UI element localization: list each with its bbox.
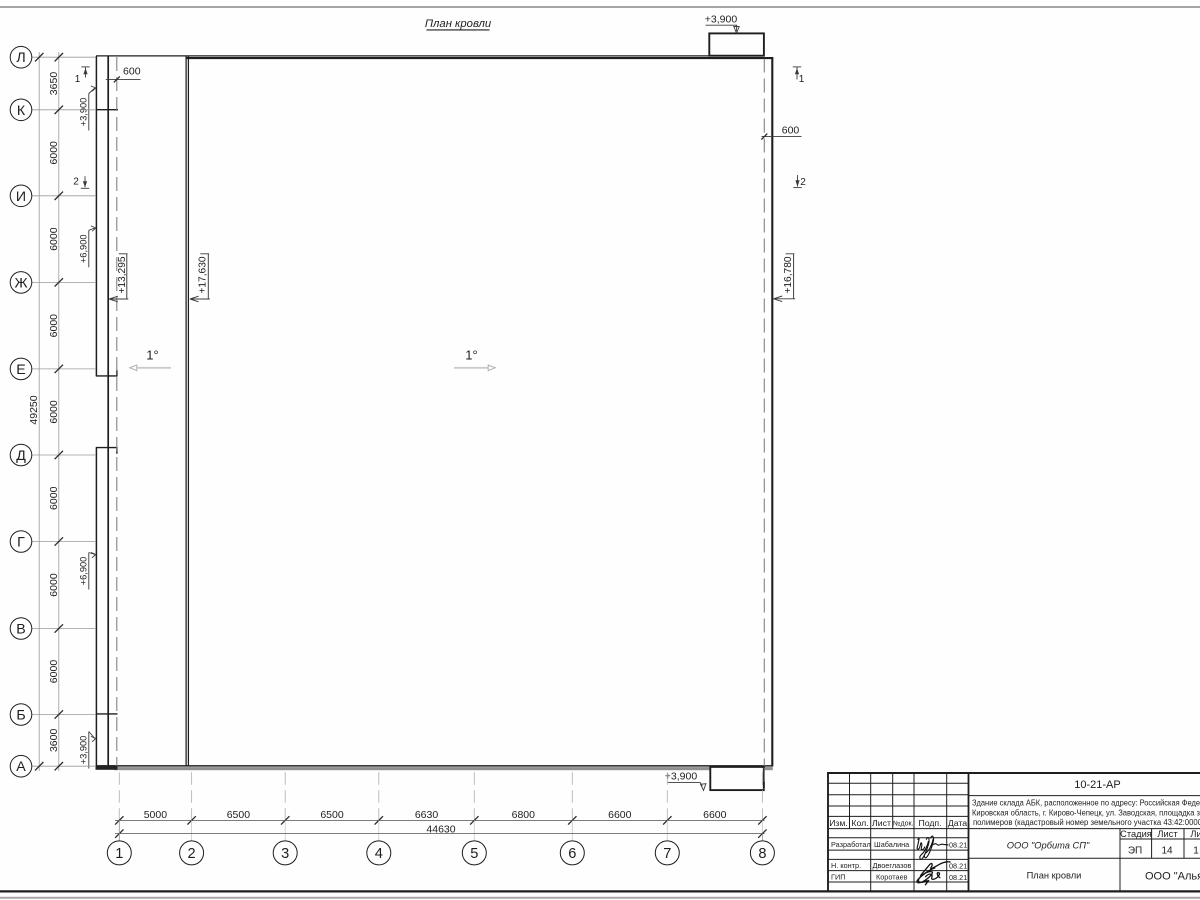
svg-text:Б: Б [16, 708, 25, 724]
svg-text:6000: 6000 [48, 400, 60, 424]
svg-text:ЭП: ЭП [1128, 846, 1142, 857]
svg-text:600: 600 [123, 65, 141, 77]
svg-text:10-21-АР: 10-21-АР [1074, 779, 1120, 791]
svg-text:1°: 1° [465, 348, 477, 363]
svg-text:В: В [16, 622, 25, 638]
svg-text:6500: 6500 [320, 809, 344, 821]
svg-text:+6,900: +6,900 [79, 234, 89, 263]
svg-text:Изм.: Изм. [829, 818, 848, 828]
svg-text:6600: 6600 [608, 809, 632, 821]
svg-text:14: 14 [1161, 846, 1173, 857]
svg-text:Ж: Ж [14, 275, 27, 291]
svg-text:6000: 6000 [48, 227, 60, 251]
svg-text:Дата: Дата [948, 818, 967, 828]
svg-text:А: А [16, 759, 26, 775]
svg-text:6000: 6000 [48, 314, 60, 338]
svg-text:Д: Д [16, 448, 26, 464]
svg-text:1: 1 [1193, 846, 1199, 857]
svg-text:2: 2 [800, 177, 806, 188]
svg-text:Л: Л [16, 50, 25, 66]
svg-text:Разработал: Разработал [831, 840, 871, 849]
svg-text:6630: 6630 [415, 809, 439, 821]
svg-text:Г: Г [17, 535, 25, 551]
svg-text:И: И [16, 189, 26, 205]
svg-text:Лист: Лист [1157, 829, 1178, 839]
svg-text:5000: 5000 [144, 809, 168, 821]
svg-text:К: К [17, 103, 26, 119]
svg-text:600: 600 [782, 125, 800, 137]
svg-text:6500: 6500 [227, 809, 251, 821]
svg-text:+6,900: +6,900 [79, 557, 89, 586]
svg-text:Е: Е [16, 362, 25, 378]
svg-text:6000: 6000 [48, 141, 60, 165]
svg-text:49250: 49250 [28, 395, 40, 424]
svg-text:ГИП: ГИП [831, 872, 845, 881]
svg-text:+17,630: +17,630 [198, 256, 209, 293]
svg-text:Лист: Лист [872, 818, 891, 828]
svg-text:+3,900: +3,900 [705, 14, 738, 26]
svg-text:6000: 6000 [48, 573, 60, 597]
svg-text:08.21: 08.21 [949, 862, 967, 871]
svg-text:Шабалина: Шабалина [874, 840, 910, 849]
svg-text:Стадия: Стадия [1120, 829, 1152, 839]
svg-text:Подп.: Подп. [918, 818, 941, 828]
svg-text:3600: 3600 [48, 729, 60, 753]
svg-text:Кол.: Кол. [851, 818, 868, 828]
svg-text:6600: 6600 [703, 809, 727, 821]
svg-text:6: 6 [568, 846, 576, 862]
svg-text:6000: 6000 [48, 486, 60, 510]
svg-text:8: 8 [758, 846, 766, 862]
svg-text:+3,900: +3,900 [665, 771, 698, 783]
svg-text:Здание склада АБК, расположенн: Здание склада АБК, расположенное по адре… [972, 798, 1200, 807]
svg-text:08.21: 08.21 [949, 841, 967, 850]
svg-text:2: 2 [73, 177, 79, 188]
svg-text:Н. контр.: Н. контр. [831, 861, 861, 870]
svg-text:Двоеглазов: Двоеглазов [873, 861, 912, 870]
svg-text:4: 4 [375, 846, 383, 862]
svg-text:План кровли: План кровли [425, 18, 492, 30]
svg-text:+3,900: +3,900 [79, 98, 89, 127]
svg-text:полимеров (кадастровый номер з: полимеров (кадастровый номер земельного … [973, 818, 1200, 827]
svg-text:44630: 44630 [426, 823, 455, 835]
svg-text:2: 2 [188, 846, 196, 862]
svg-text:08.21: 08.21 [949, 873, 967, 882]
svg-text:План кровли: План кровли [1027, 870, 1082, 880]
svg-text:1: 1 [115, 846, 123, 862]
svg-text:Кировская область, г. Кирово-Ч: Кировская область, г. Кирово-Чепецк, ул.… [972, 808, 1200, 817]
svg-text:+16,780: +16,780 [783, 256, 794, 293]
svg-text:Коротаев: Коротаев [876, 872, 908, 881]
svg-text:Ли: Ли [1190, 829, 1200, 839]
svg-text:5: 5 [470, 846, 478, 862]
svg-text:6000: 6000 [48, 660, 60, 684]
svg-text:+3,900: +3,900 [79, 736, 89, 765]
svg-text:№док.: №док. [893, 820, 914, 827]
svg-text:1: 1 [75, 74, 81, 85]
svg-text:ООО "Альянс: ООО "Альянс [1145, 871, 1200, 883]
svg-text:7: 7 [663, 846, 671, 862]
svg-text:1°: 1° [146, 348, 158, 363]
svg-text:3650: 3650 [48, 72, 60, 96]
svg-text:6800: 6800 [512, 809, 536, 821]
svg-text:3: 3 [281, 846, 289, 862]
svg-text:1: 1 [799, 74, 805, 85]
svg-text:ООО "Орбита СП": ООО "Орбита СП" [1007, 840, 1090, 850]
